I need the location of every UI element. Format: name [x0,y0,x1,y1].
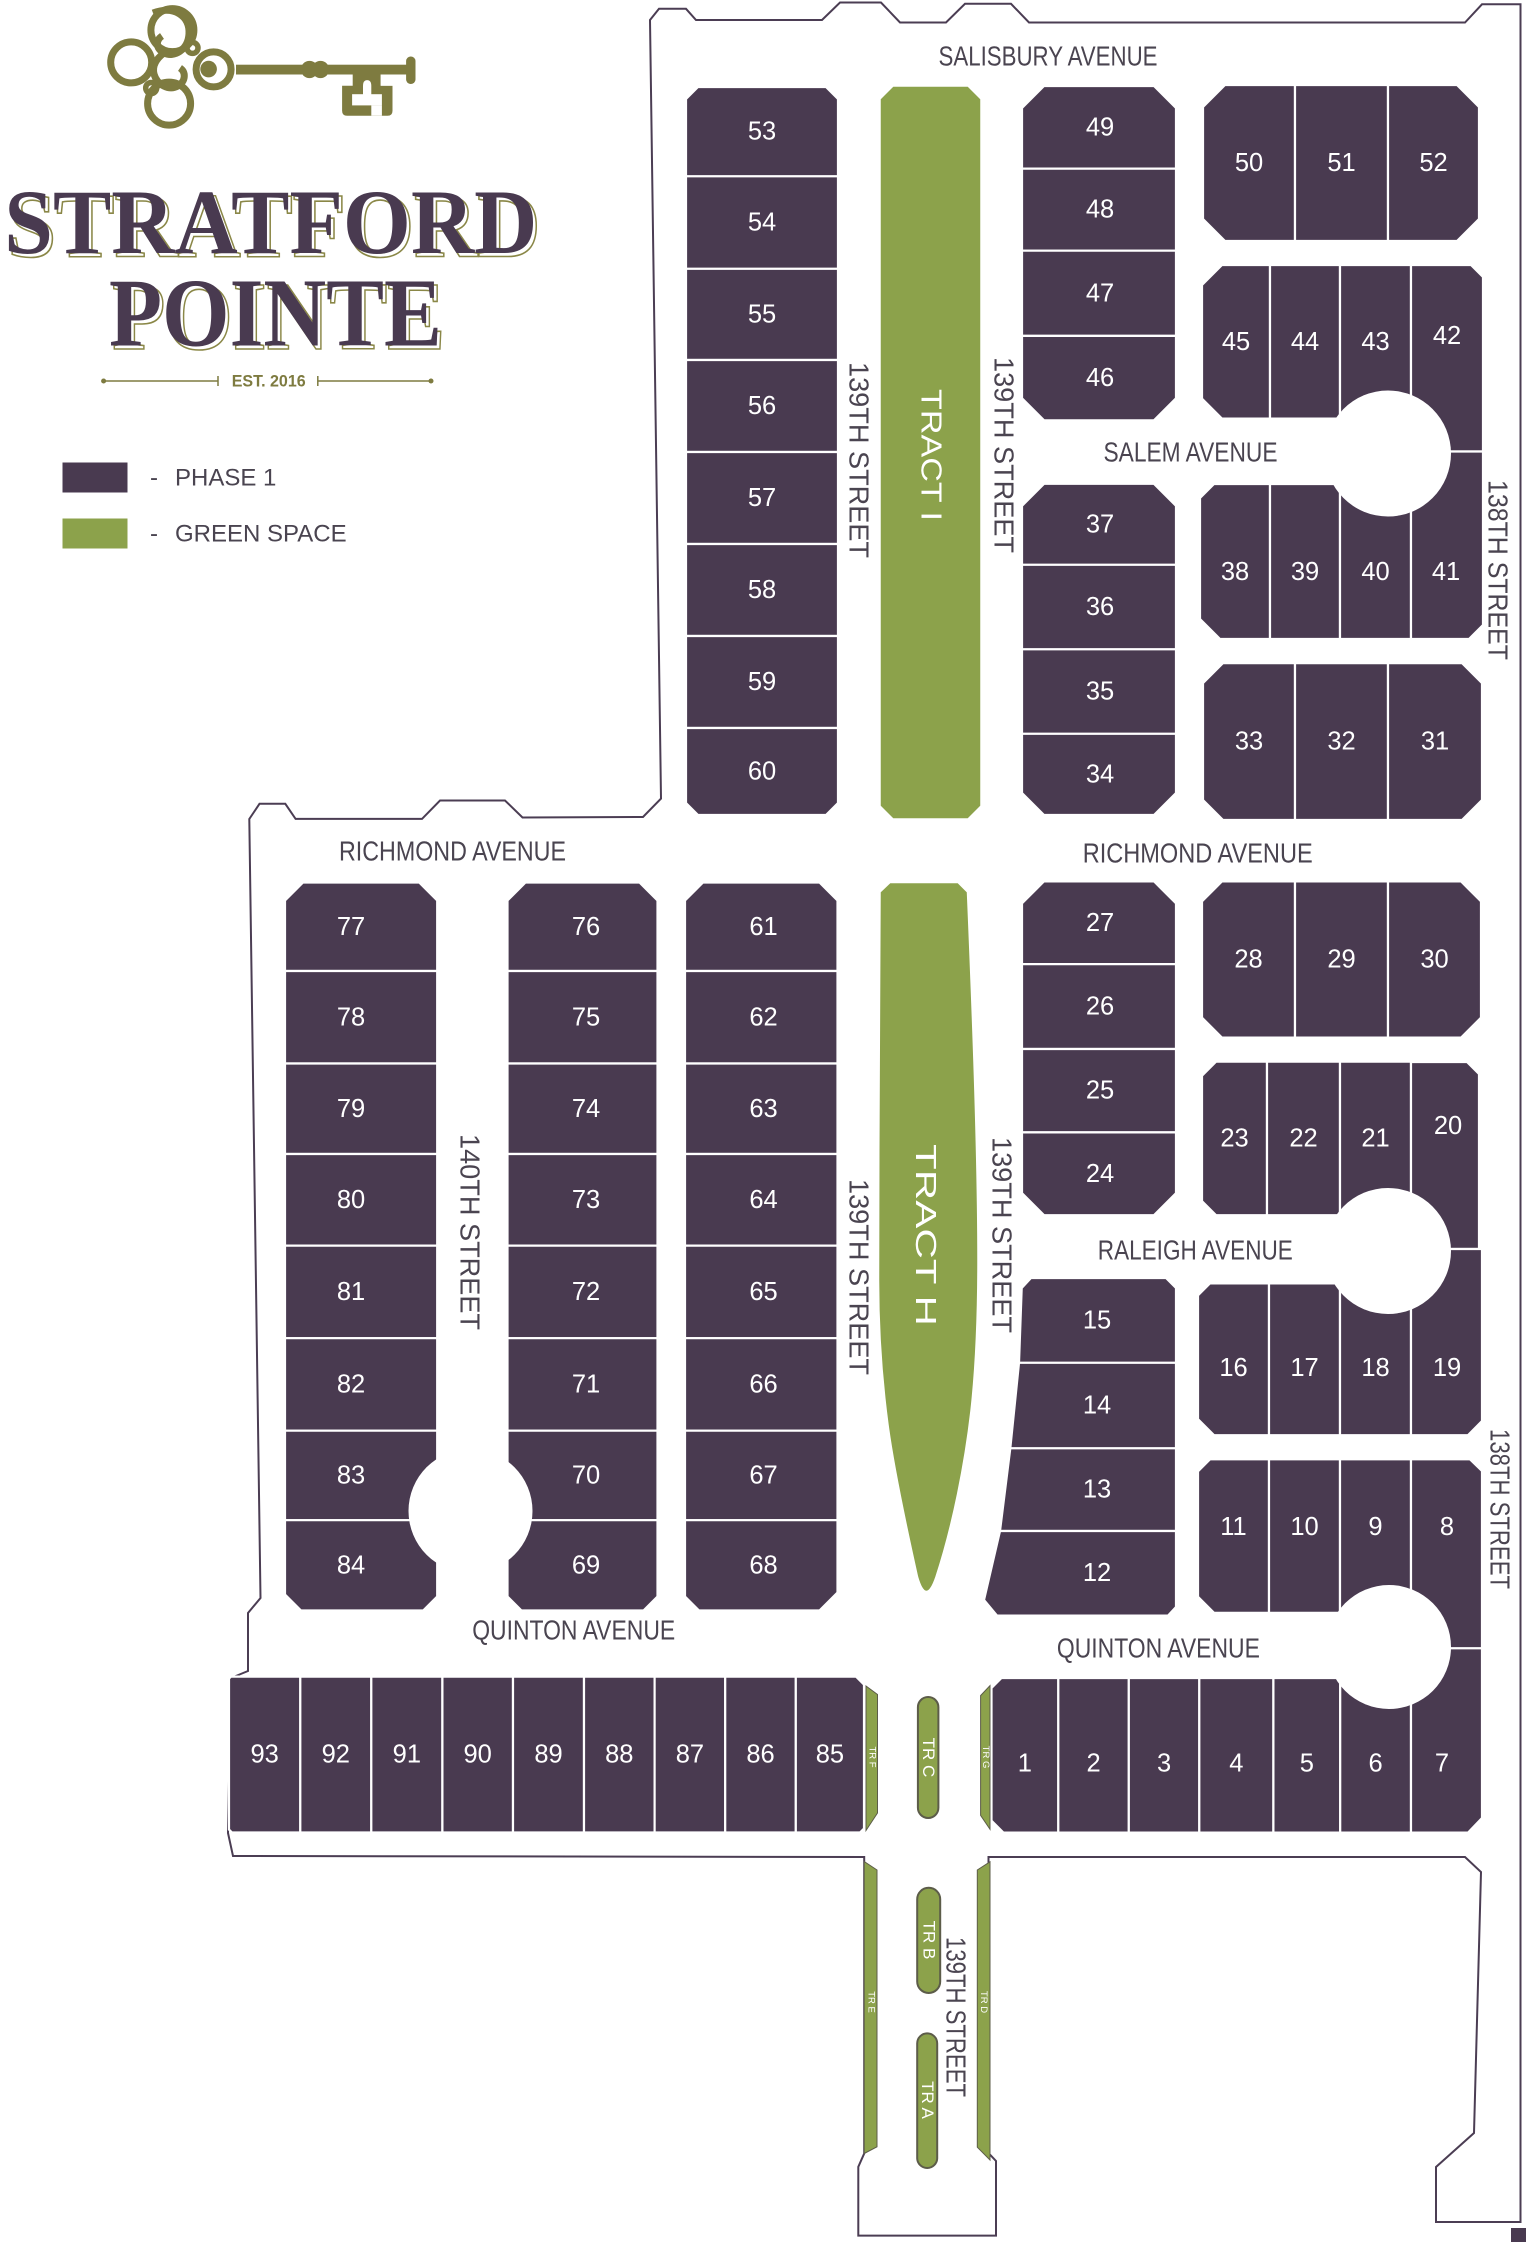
svg-text:49: 49 [1086,113,1114,141]
svg-text:62: 62 [749,1003,777,1031]
svg-text:58: 58 [748,576,776,604]
svg-text:1: 1 [1018,1750,1032,1778]
svg-text:RICHMOND AVENUE: RICHMOND AVENUE [1083,838,1313,869]
svg-text:61: 61 [749,913,777,941]
svg-text:47: 47 [1086,279,1114,307]
svg-text:81: 81 [337,1278,365,1306]
svg-text:23: 23 [1220,1124,1248,1152]
svg-text:25: 25 [1086,1077,1114,1105]
svg-text:67: 67 [749,1461,777,1489]
svg-text:-: - [150,465,158,492]
svg-text:37: 37 [1086,510,1114,538]
svg-text:4: 4 [1229,1750,1243,1778]
svg-text:85: 85 [816,1741,844,1769]
svg-text:SALISBURY AVENUE: SALISBURY AVENUE [939,41,1158,72]
svg-text:39: 39 [1291,558,1319,586]
svg-text:TR E: TR E [866,1991,877,2013]
svg-text:9: 9 [1368,1513,1382,1541]
svg-text:92: 92 [322,1741,350,1769]
svg-text:64: 64 [749,1186,777,1214]
svg-text:138TH STREET: 138TH STREET [1483,480,1514,660]
svg-text:63: 63 [749,1095,777,1123]
svg-text:22: 22 [1289,1124,1317,1152]
svg-text:71: 71 [572,1370,600,1398]
svg-text:91: 91 [393,1741,421,1769]
svg-text:-: - [150,521,158,548]
svg-text:90: 90 [464,1741,492,1769]
svg-text:72: 72 [572,1278,600,1306]
svg-text:2: 2 [1086,1750,1100,1778]
svg-text:24: 24 [1086,1160,1114,1188]
svg-text:43: 43 [1361,328,1389,356]
svg-text:8: 8 [1440,1513,1454,1541]
svg-text:139TH STREET: 139TH STREET [844,362,875,558]
svg-text:69: 69 [572,1551,600,1579]
svg-text:27: 27 [1086,909,1114,937]
svg-text:QUINTON AVENUE: QUINTON AVENUE [472,1615,675,1646]
svg-text:TR B: TR B [920,1921,939,1960]
svg-text:84: 84 [337,1551,365,1579]
svg-text:41: 41 [1432,558,1460,586]
svg-text:35: 35 [1086,678,1114,706]
svg-text:82: 82 [337,1370,365,1398]
svg-text:74: 74 [572,1095,600,1123]
svg-text:77: 77 [337,913,365,941]
svg-text:14: 14 [1083,1392,1111,1420]
svg-text:15: 15 [1083,1306,1111,1334]
svg-text:EST. 2016: EST. 2016 [232,372,306,391]
svg-text:139TH STREET: 139TH STREET [989,357,1020,553]
svg-text:52: 52 [1419,149,1447,177]
svg-text:76: 76 [572,913,600,941]
svg-text:70: 70 [572,1461,600,1489]
svg-text:93: 93 [250,1741,278,1769]
svg-text:32: 32 [1327,728,1355,756]
svg-text:33: 33 [1235,728,1263,756]
svg-text:TRACT H: TRACT H [909,1144,941,1326]
svg-text:78: 78 [337,1003,365,1031]
svg-text:7: 7 [1435,1750,1449,1778]
svg-text:16: 16 [1219,1354,1247,1382]
svg-text:RICHMOND AVENUE: RICHMOND AVENUE [339,836,566,867]
svg-text:60: 60 [748,758,776,786]
svg-text:GREEN SPACE: GREEN SPACE [175,521,347,548]
svg-text:TR A: TR A [918,2081,937,2119]
svg-text:44: 44 [1291,328,1319,356]
svg-text:21: 21 [1361,1124,1389,1152]
svg-text:3: 3 [1157,1750,1171,1778]
svg-text:19: 19 [1433,1354,1461,1382]
svg-text:5: 5 [1300,1750,1314,1778]
svg-text:80: 80 [337,1186,365,1214]
svg-text:28: 28 [1234,946,1262,974]
svg-text:TR D: TR D [978,1991,989,2013]
svg-text:139TH STREET: 139TH STREET [987,1137,1018,1333]
svg-text:POINTE: POINTE [109,260,442,367]
svg-text:45: 45 [1222,328,1250,356]
svg-text:26: 26 [1086,993,1114,1021]
svg-text:68: 68 [749,1551,777,1579]
svg-text:6: 6 [1369,1750,1383,1778]
svg-text:18: 18 [1361,1354,1389,1382]
svg-text:PHASE 1: PHASE 1 [175,465,276,492]
svg-text:75: 75 [572,1003,600,1031]
svg-text:66: 66 [749,1370,777,1398]
svg-text:46: 46 [1086,364,1114,392]
svg-text:STRATFORD: STRATFORD [4,171,537,273]
svg-text:SALEM AVENUE: SALEM AVENUE [1104,437,1278,468]
svg-text:65: 65 [749,1278,777,1306]
svg-text:88: 88 [605,1741,633,1769]
svg-text:42: 42 [1433,322,1461,350]
svg-text:12: 12 [1083,1559,1111,1587]
svg-text:51: 51 [1327,149,1355,177]
svg-text:56: 56 [748,392,776,420]
svg-text:89: 89 [534,1741,562,1769]
svg-text:79: 79 [337,1095,365,1123]
svg-text:TR F: TR F [867,1746,878,1767]
svg-text:30: 30 [1420,946,1448,974]
svg-text:139TH STREET: 139TH STREET [941,1937,972,2097]
svg-text:11: 11 [1220,1513,1246,1541]
svg-text:57: 57 [748,484,776,512]
svg-text:20: 20 [1434,1112,1462,1140]
svg-text:53: 53 [748,118,776,146]
svg-text:83: 83 [337,1461,365,1489]
svg-text:QUINTON AVENUE: QUINTON AVENUE [1057,1633,1260,1664]
svg-text:139TH STREET: 139TH STREET [844,1179,875,1375]
svg-text:13: 13 [1083,1476,1111,1504]
svg-text:48: 48 [1086,196,1114,224]
svg-text:59: 59 [748,668,776,696]
svg-text:86: 86 [746,1741,774,1769]
svg-text:TR G: TR G [980,1746,991,1769]
svg-text:34: 34 [1086,760,1114,788]
svg-text:73: 73 [572,1186,600,1214]
svg-text:29: 29 [1327,946,1355,974]
svg-text:38: 38 [1221,558,1249,586]
svg-text:17: 17 [1290,1354,1318,1382]
svg-text:54: 54 [748,209,776,237]
svg-text:140TH STREET: 140TH STREET [455,1134,486,1330]
svg-text:36: 36 [1086,593,1114,621]
svg-text:55: 55 [748,300,776,328]
svg-text:TR C: TR C [919,1738,938,1778]
svg-text:10: 10 [1290,1513,1318,1541]
svg-text:31: 31 [1421,728,1449,756]
svg-text:138TH STREET: 138TH STREET [1485,1429,1516,1589]
svg-text:RALEIGH AVENUE: RALEIGH AVENUE [1098,1235,1293,1266]
svg-text:TRACT I: TRACT I [915,389,947,521]
svg-text:40: 40 [1361,558,1389,586]
svg-text:50: 50 [1235,149,1263,177]
svg-text:87: 87 [676,1741,704,1769]
